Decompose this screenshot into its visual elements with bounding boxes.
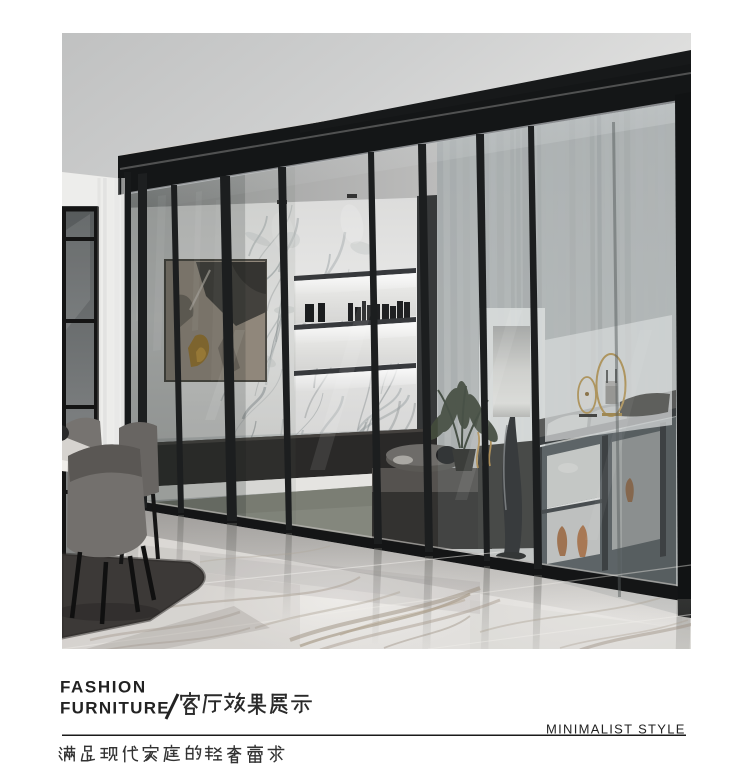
svg-text:FURNITURE: FURNITURE [60, 699, 170, 718]
svg-text:FASHION: FASHION [60, 678, 147, 697]
svg-text:MINIMALIST STYLE: MINIMALIST STYLE [546, 722, 686, 737]
